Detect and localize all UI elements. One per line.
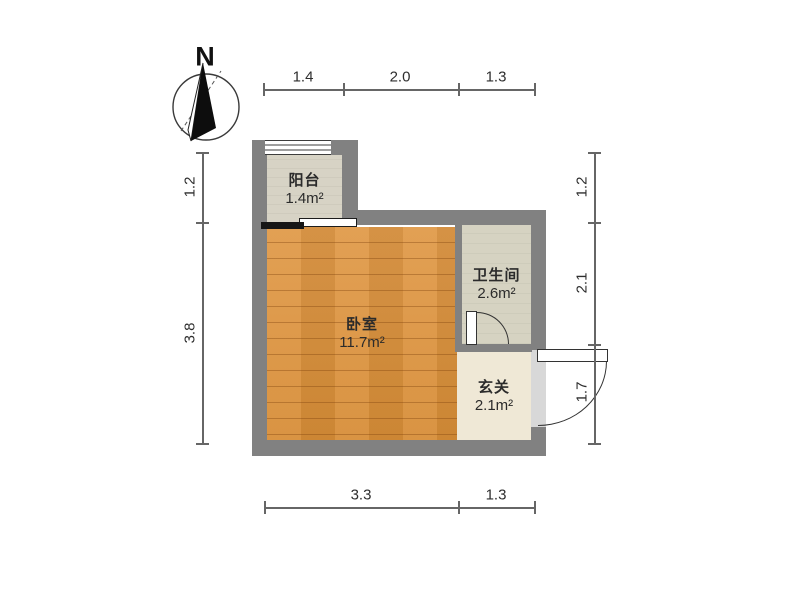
dim-tick bbox=[588, 344, 601, 346]
dim-line bbox=[263, 89, 535, 91]
dim-top-1: 1.4 bbox=[293, 70, 314, 85]
dim-tick bbox=[196, 443, 209, 445]
dim-line bbox=[264, 507, 535, 509]
wall-bathroom-hallway bbox=[455, 344, 532, 352]
dim-tick bbox=[263, 83, 265, 96]
dim-tick bbox=[196, 152, 209, 154]
room-bedroom-area: 11.7m² bbox=[339, 335, 385, 350]
dim-tick bbox=[458, 83, 460, 96]
room-bedroom-name: 卧室 bbox=[346, 317, 378, 332]
dim-bottom-1: 3.3 bbox=[351, 488, 372, 503]
dim-bottom-2: 1.3 bbox=[486, 488, 507, 503]
dim-right-2: 2.1 bbox=[575, 273, 590, 294]
wall-top-right bbox=[342, 210, 546, 225]
dim-tick bbox=[534, 501, 536, 514]
dim-tick bbox=[534, 83, 536, 96]
room-balcony-area: 1.4m² bbox=[285, 191, 323, 206]
room-bathroom-name: 卫生间 bbox=[472, 268, 520, 283]
dim-right-1: 1.2 bbox=[575, 177, 590, 198]
floor-plan: N 阳台 1.4m² 卧室 11.7m² 卫生间 2.6m² 玄关 2.1m² bbox=[0, 0, 800, 600]
wall-bedroom-bathroom bbox=[455, 225, 462, 352]
room-bedroom: 卧室 11.7m² bbox=[267, 227, 457, 440]
dim-tick bbox=[588, 222, 601, 224]
room-balcony: 阳台 1.4m² bbox=[267, 155, 342, 223]
bathroom-door-leaf bbox=[466, 311, 477, 345]
dim-tick bbox=[264, 501, 266, 514]
sliding-door-panel-open bbox=[299, 218, 357, 227]
balcony-window-icon bbox=[265, 140, 331, 155]
wall-left bbox=[252, 140, 267, 456]
dim-tick bbox=[196, 222, 209, 224]
dim-line bbox=[594, 152, 596, 444]
dim-tick bbox=[588, 152, 601, 154]
dim-line bbox=[202, 152, 204, 444]
room-hallway-area: 2.1m² bbox=[475, 398, 513, 413]
dim-tick bbox=[458, 501, 460, 514]
dim-tick bbox=[343, 83, 345, 96]
dim-top-3: 1.3 bbox=[486, 70, 507, 85]
room-hallway-name: 玄关 bbox=[478, 380, 510, 395]
room-bathroom-area: 2.6m² bbox=[477, 286, 515, 301]
dim-left-2: 3.8 bbox=[183, 323, 198, 344]
room-hallway: 玄关 2.1m² bbox=[457, 352, 531, 440]
dim-right-3: 1.7 bbox=[575, 382, 590, 403]
dim-tick bbox=[588, 443, 601, 445]
wall-bottom bbox=[252, 440, 546, 456]
room-balcony-name: 阳台 bbox=[288, 173, 320, 188]
dim-top-2: 2.0 bbox=[390, 70, 411, 85]
sliding-door-panel-closed bbox=[261, 222, 304, 229]
dim-left-1: 1.2 bbox=[183, 177, 198, 198]
wall-right-upper bbox=[531, 210, 546, 350]
